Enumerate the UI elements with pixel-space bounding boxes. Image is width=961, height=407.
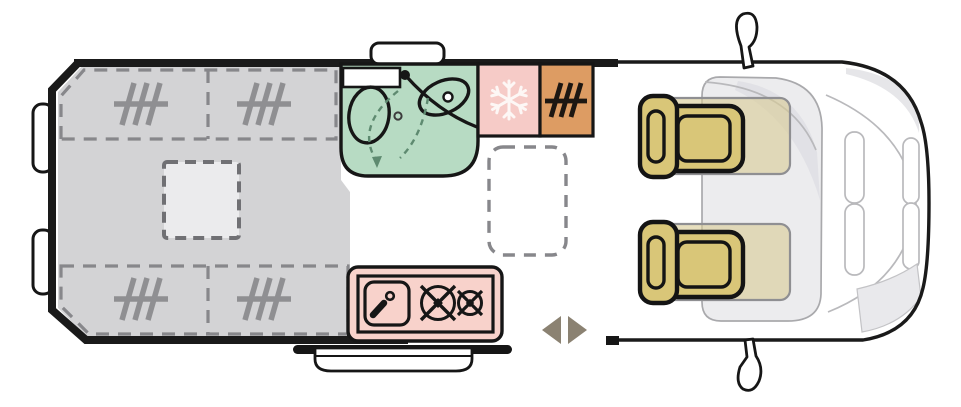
heater-cabinet [540,64,593,136]
bathroom-window [371,43,444,64]
skylight-outline [164,162,239,238]
rear-bed-area [58,64,350,338]
driver-seat [640,96,790,177]
kitchen-worktop [348,267,502,341]
mirror-icon-top [736,13,757,68]
van-floorplan [0,0,961,407]
door-hinge-dot [400,70,410,80]
headlight-icon [903,138,919,204]
headlight-icon [845,204,864,275]
seat-backrest [640,222,677,303]
floorplan-svg [0,0,961,407]
seat-backrest [640,96,677,177]
cab-front [618,13,929,390]
arrow-left-icon [542,316,561,344]
bathroom [341,64,478,176]
mirror-icon-bottom [738,339,761,390]
bathroom-bench [343,68,400,87]
grille-shade-top [846,68,919,133]
entry-step [315,348,472,371]
refrigerator [478,64,540,136]
headlight-icon [903,203,919,269]
table-outline [489,147,566,255]
arrow-right-icon [568,316,587,344]
basin-faucet-icon [444,93,453,102]
kitchen-block [348,267,502,341]
grille-shade-bottom [857,264,921,332]
headlight-icon [845,132,864,203]
passenger-seat [640,222,790,303]
door-track-end [606,336,619,345]
